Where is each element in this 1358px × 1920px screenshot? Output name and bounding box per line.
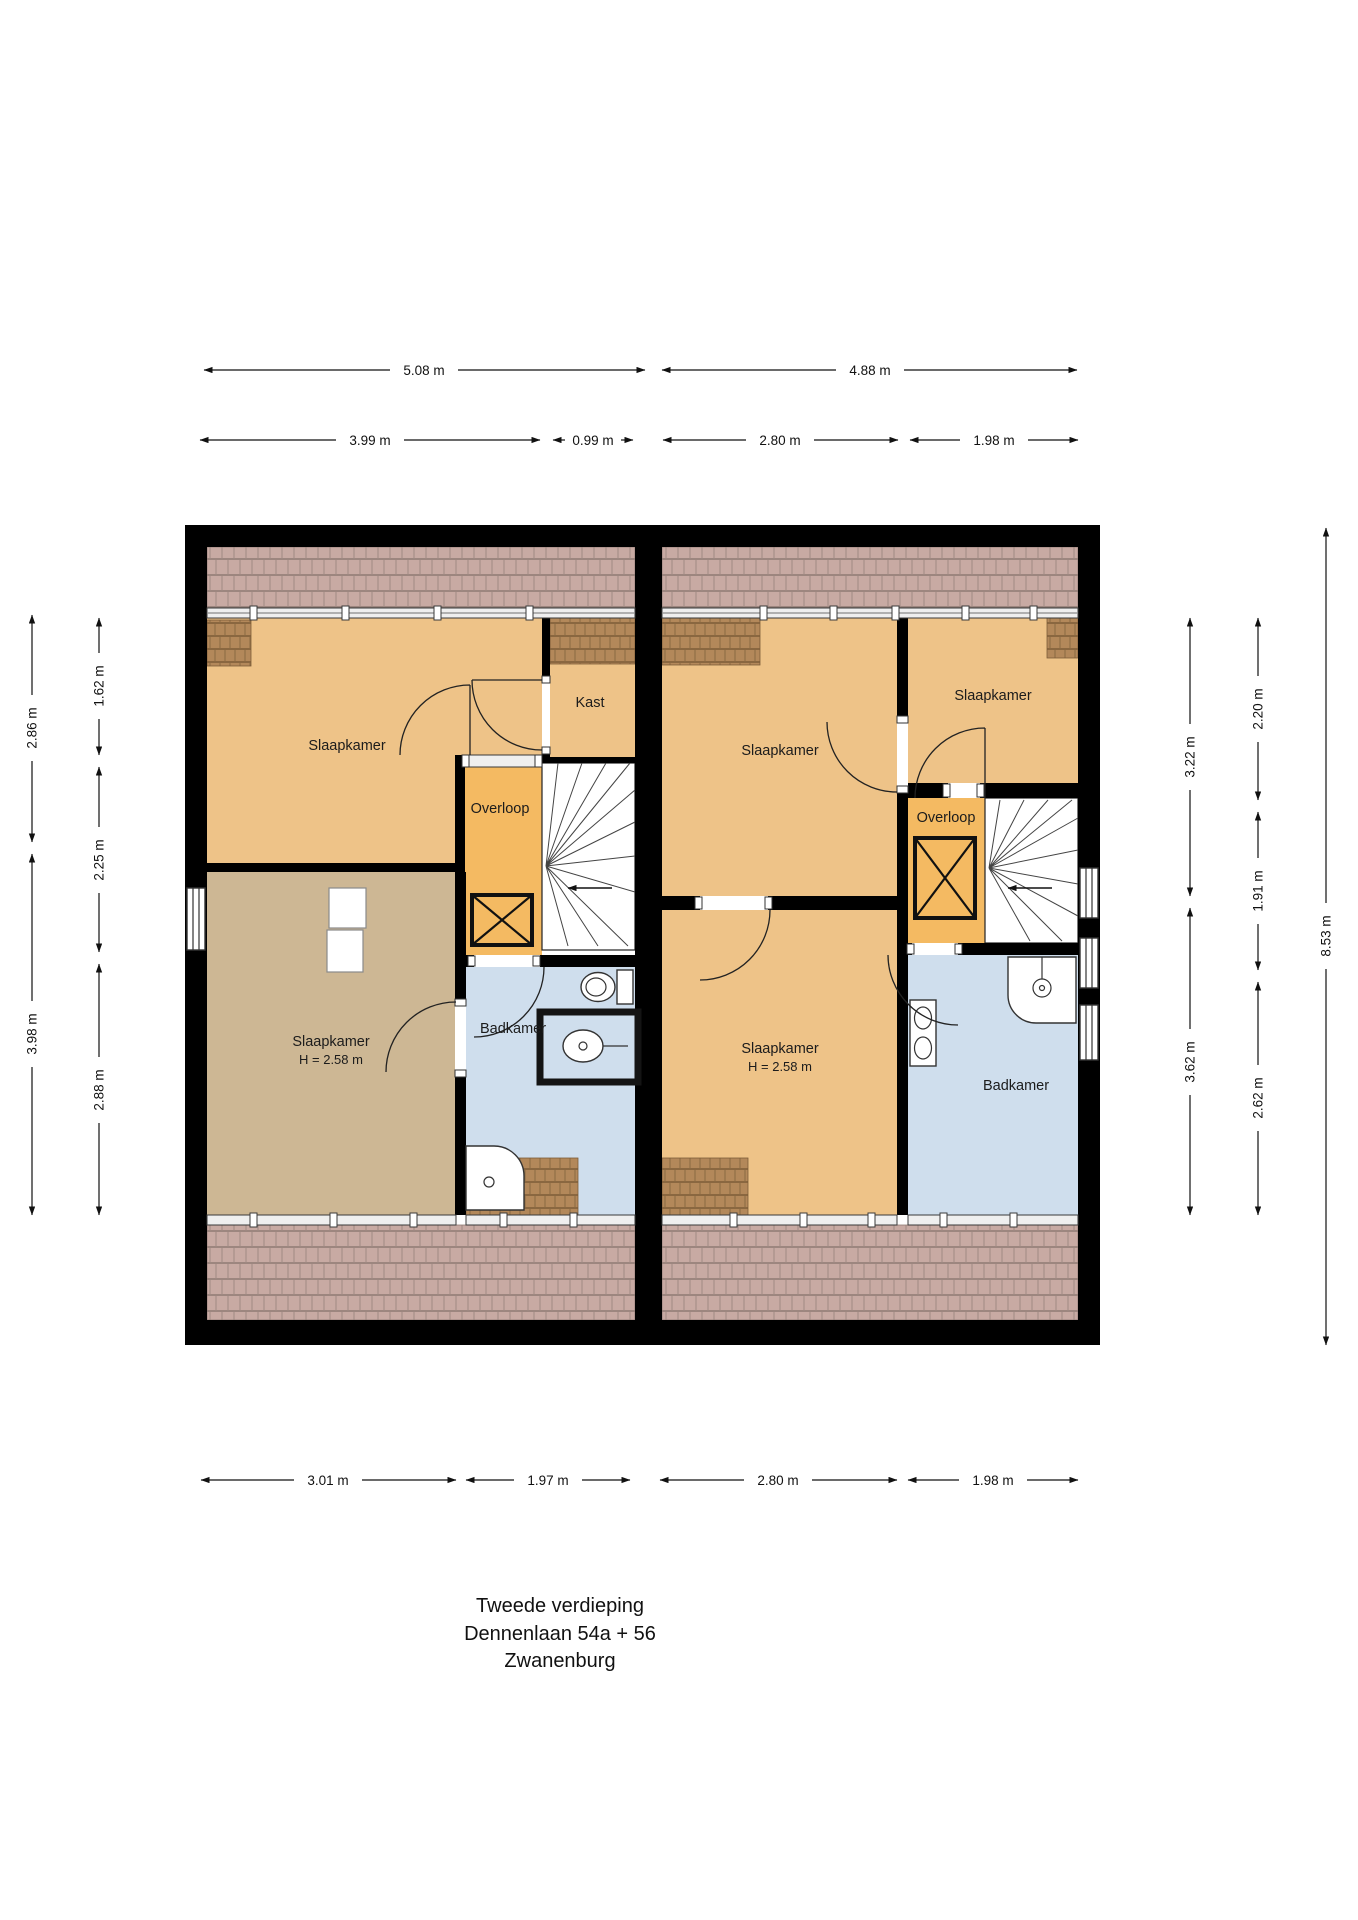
dim-bottom-seg-2: 1.97 m xyxy=(466,1473,630,1488)
dim-top-seg-1: 3.99 m xyxy=(200,433,540,448)
title-floor: Tweede verdieping xyxy=(260,1593,860,1621)
label-left-slaapkamer-top: Slaapkamer xyxy=(308,738,386,754)
svg-text:2.62 m: 2.62 m xyxy=(1251,1077,1266,1118)
dim-right-total-1: 3.22 m xyxy=(1183,618,1198,896)
svg-text:4.88 m: 4.88 m xyxy=(849,363,890,378)
title-block: Tweede verdieping Dennenlaan 54a + 56 Zw… xyxy=(260,1593,860,1676)
svg-text:3.22 m: 3.22 m xyxy=(1183,736,1198,777)
label-right-slaapkamer-right: Slaapkamer xyxy=(954,688,1032,704)
label-right-slaapkamer-left: Slaapkamer xyxy=(741,743,819,759)
svg-text:8.53 m: 8.53 m xyxy=(1319,915,1334,956)
svg-text:2.25 m: 2.25 m xyxy=(92,839,107,880)
window-right-wall-3 xyxy=(1080,1005,1098,1060)
dim-right-seg-1: 2.20 m xyxy=(1251,618,1266,800)
roof-patch-right-slaapkamer-left xyxy=(662,618,760,665)
svg-text:2.80 m: 2.80 m xyxy=(757,1473,798,1488)
roof-patch-right-bottom xyxy=(662,1158,748,1215)
dim-left-total-1: 2.86 m xyxy=(25,615,40,842)
svg-text:2.20 m: 2.20 m xyxy=(1251,688,1266,729)
title-city: Zwanenburg xyxy=(260,1648,860,1676)
dim-left-seg-2: 2.25 m xyxy=(92,767,107,952)
note-right-slaapkamer-height: H = 2.58 m xyxy=(748,1059,812,1074)
svg-text:2.86 m: 2.86 m xyxy=(25,707,40,748)
wall-right-slaapkamers-vertical xyxy=(897,618,908,1215)
label-left-slaapkamer-bottom: Slaapkamer xyxy=(292,1034,370,1050)
floorplan-page: Slaapkamer Kast Overloop Slaapkamer H = … xyxy=(0,0,1358,1920)
svg-text:3.98 m: 3.98 m xyxy=(25,1013,40,1054)
toilet-cistern xyxy=(617,970,633,1004)
dim-top-seg-2: 0.99 m xyxy=(553,433,633,448)
roof-patch-kast xyxy=(550,618,635,664)
svg-text:1.98 m: 1.98 m xyxy=(973,433,1014,448)
wall-left-overloop-west xyxy=(455,755,465,872)
dim-right-total-2: 3.62 m xyxy=(1183,908,1198,1215)
window-right-wall-1 xyxy=(1080,868,1098,918)
window-band-bottom-2 xyxy=(466,1215,635,1225)
dim-top-total-right: 4.88 m xyxy=(662,363,1077,378)
svg-text:3.99 m: 3.99 m xyxy=(349,433,390,448)
alcove-sink xyxy=(563,1030,603,1062)
label-left-overloop: Overloop xyxy=(471,801,530,817)
svg-text:1.97 m: 1.97 m xyxy=(527,1473,568,1488)
roof-band-top-left xyxy=(207,547,635,608)
dim-left-total-2: 3.98 m xyxy=(25,854,40,1215)
roof-band-bottom-left xyxy=(207,1225,635,1320)
left-slaapkamer-appliances xyxy=(327,888,366,972)
svg-text:2.88 m: 2.88 m xyxy=(92,1069,107,1110)
window-band-bottom-4 xyxy=(908,1215,1078,1225)
label-right-overloop: Overloop xyxy=(917,810,976,826)
dim-bottom-seg-3: 2.80 m xyxy=(660,1473,897,1488)
roof-patch-right-slaapkamer-right xyxy=(1047,618,1078,658)
dim-bottom-seg-4: 1.98 m xyxy=(908,1473,1078,1488)
svg-text:2.80 m: 2.80 m xyxy=(759,433,800,448)
svg-text:1.91 m: 1.91 m xyxy=(1251,870,1266,911)
svg-text:3.01 m: 3.01 m xyxy=(307,1473,348,1488)
svg-text:0.99 m: 0.99 m xyxy=(572,433,613,448)
window-band-bottom-3 xyxy=(662,1215,897,1225)
dim-top-seg-4: 1.98 m xyxy=(910,433,1078,448)
dim-left-seg-3: 2.88 m xyxy=(92,964,107,1215)
note-left-slaapkamer-height: H = 2.58 m xyxy=(299,1052,363,1067)
title-address: Dennenlaan 54a + 56 xyxy=(260,1621,860,1649)
wall-left-stairs-north xyxy=(542,757,635,763)
dim-right-seg-3: 2.62 m xyxy=(1251,982,1266,1215)
window-left-wall xyxy=(187,888,205,950)
roof-band-bottom-right xyxy=(662,1225,1078,1320)
wall-right xyxy=(1078,525,1100,1345)
label-right-slaapkamer-bottom: Slaapkamer xyxy=(741,1041,819,1057)
dim-bottom-seg-1: 3.01 m xyxy=(201,1473,456,1488)
wall-left-slaapkamers xyxy=(207,863,455,872)
door-band-left-overloop-top xyxy=(466,755,542,767)
left-stairwell-floor xyxy=(542,763,635,950)
svg-text:3.62 m: 3.62 m xyxy=(1183,1041,1198,1082)
label-left-badkamer: Badkamer xyxy=(480,1021,546,1037)
window-right-wall-2 xyxy=(1080,938,1098,988)
dim-right-overall: 8.53 m xyxy=(1319,528,1334,1345)
label-right-badkamer: Badkamer xyxy=(983,1078,1049,1094)
roof-band-top-right xyxy=(662,547,1078,608)
dim-top-seg-3: 2.80 m xyxy=(663,433,898,448)
dim-right-seg-2: 1.91 m xyxy=(1251,812,1266,970)
label-left-kast: Kast xyxy=(575,695,604,711)
dim-left-seg-1: 1.62 m xyxy=(92,618,107,755)
wall-right-slaapkamer-right-south xyxy=(908,783,1078,798)
appliance-box-1 xyxy=(329,888,366,928)
wall-party xyxy=(635,525,662,1345)
svg-text:1.62 m: 1.62 m xyxy=(92,665,107,706)
svg-text:1.98 m: 1.98 m xyxy=(972,1473,1013,1488)
shower-tray-left xyxy=(466,1146,524,1210)
roof-patch-left-corner xyxy=(207,620,251,666)
appliance-box-2 xyxy=(327,930,363,972)
dim-top-total-left: 5.08 m xyxy=(204,363,645,378)
svg-text:5.08 m: 5.08 m xyxy=(403,363,444,378)
